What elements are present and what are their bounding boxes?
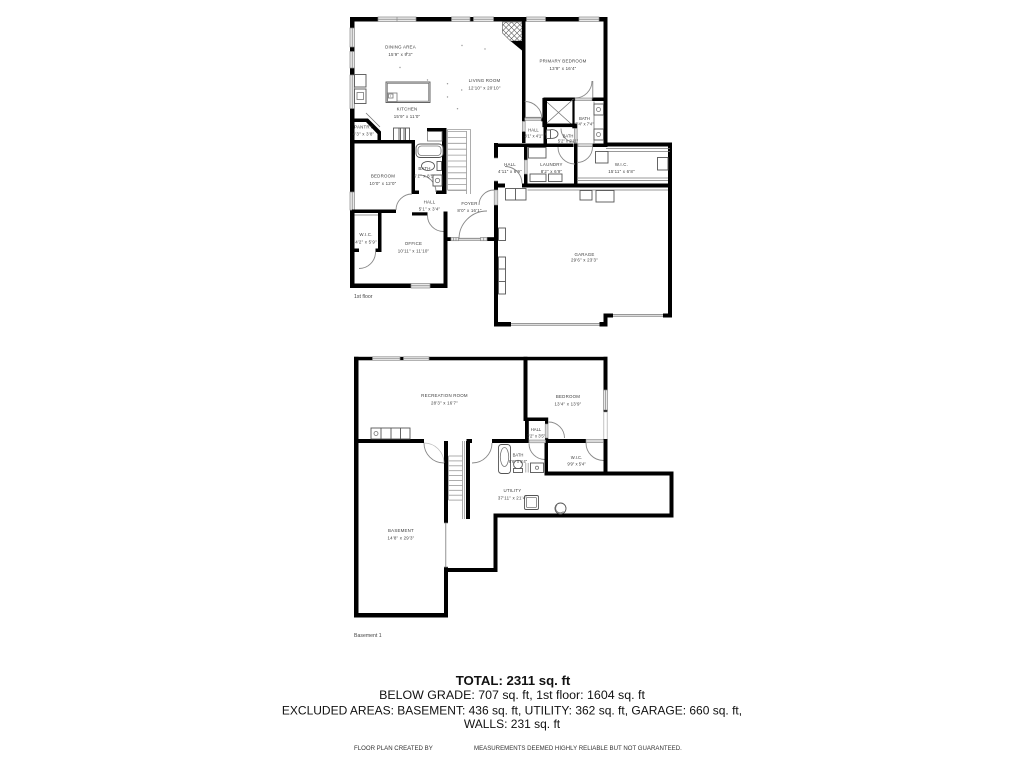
svg-text:HALL: HALL [424, 200, 436, 205]
svg-text:BELOW GRADE: 707 sq. ft, 1st f: BELOW GRADE: 707 sq. ft, 1st floor: 1604… [379, 688, 645, 702]
svg-text:WALLS: 231 sq. ft: WALLS: 231 sq. ft [464, 717, 561, 731]
svg-text:FOYER: FOYER [461, 201, 477, 206]
svg-text:9'9" x 5'4": 9'9" x 5'4" [567, 462, 586, 467]
svg-text:15'11" x 6'8": 15'11" x 6'8" [608, 169, 635, 174]
svg-text:PRIMARY BEDROOM: PRIMARY BEDROOM [539, 59, 586, 64]
svg-text:HALL: HALL [531, 427, 542, 432]
svg-text:15'9" x 11'0": 15'9" x 11'0" [394, 114, 421, 119]
svg-text:UTILITY: UTILITY [504, 488, 522, 493]
svg-text:BEDROOM: BEDROOM [371, 174, 395, 179]
svg-text:6'1" x 8'5": 6'1" x 8'5" [414, 174, 436, 179]
svg-text:MEASUREMENTS DEEMED HIGHLY REL: MEASUREMENTS DEEMED HIGHLY RELIABLE BUT … [474, 745, 682, 752]
svg-text:28'3" x 16'7": 28'3" x 16'7" [431, 401, 458, 406]
svg-text:W.I.C.: W.I.C. [571, 455, 582, 460]
svg-text:10'0" x 12'0": 10'0" x 12'0" [370, 181, 397, 186]
svg-text:8'6" x 5'4": 8'6" x 5'4" [509, 459, 528, 464]
svg-text:3'2" x 3'5": 3'2" x 3'5" [527, 434, 546, 439]
svg-text:RECREATION ROOM: RECREATION ROOM [421, 393, 468, 398]
svg-text:Basement 1: Basement 1 [354, 633, 382, 639]
svg-text:8'0" x 16'1": 8'0" x 16'1" [457, 208, 481, 213]
svg-text:7'4" x 7'4": 7'4" x 7'4" [575, 122, 594, 127]
svg-text:14'8" x 29'3": 14'8" x 29'3" [388, 536, 415, 541]
svg-text:BATH: BATH [579, 116, 590, 121]
svg-text:5'1" x 3'4": 5'1" x 3'4" [419, 207, 441, 212]
svg-text:8'2" x 6'9": 8'2" x 6'9" [541, 169, 563, 174]
svg-text:12'10" x 20'10": 12'10" x 20'10" [468, 86, 500, 91]
svg-text:PANTRY: PANTRY [354, 125, 373, 130]
svg-text:BATH: BATH [513, 453, 524, 458]
svg-text:HALL: HALL [504, 162, 516, 167]
svg-text:BATH: BATH [418, 166, 430, 171]
svg-text:29'6" x 23'3": 29'6" x 23'3" [571, 258, 598, 263]
svg-text:15'9" x 9'3": 15'9" x 9'3" [388, 52, 412, 57]
svg-text:BEDROOM: BEDROOM [556, 394, 580, 399]
svg-text:GARAGE: GARAGE [574, 252, 594, 257]
svg-text:13'4" x 13'9": 13'4" x 13'9" [555, 402, 582, 407]
svg-text:BASEMENT: BASEMENT [388, 528, 414, 533]
svg-text:TOTAL: 2311 sq. ft: TOTAL: 2311 sq. ft [456, 673, 571, 688]
svg-text:W.I.C.: W.I.C. [359, 232, 372, 237]
svg-text:LIVING ROOM: LIVING ROOM [469, 78, 501, 83]
svg-text:LAUNDRY: LAUNDRY [540, 162, 562, 167]
svg-text:4'11" x 6'9": 4'11" x 6'9" [498, 169, 522, 174]
svg-text:5'2" x 2'11": 5'2" x 2'11" [558, 139, 579, 144]
svg-text:KITCHEN: KITCHEN [397, 107, 418, 112]
svg-text:OFFICE: OFFICE [405, 241, 422, 246]
svg-text:1st floor: 1st floor [354, 294, 373, 300]
svg-text:13'9" x 16'4": 13'9" x 16'4" [550, 66, 577, 71]
svg-text:W.I.C.: W.I.C. [615, 162, 628, 167]
svg-text:3'1" x 4'1": 3'1" x 4'1" [524, 134, 543, 139]
svg-text:10'11" x 11'10": 10'11" x 11'10" [398, 249, 430, 254]
svg-text:4'2" x 5'9": 4'2" x 5'9" [355, 240, 377, 245]
svg-text:37'11" x 21'4": 37'11" x 21'4" [498, 496, 527, 501]
svg-text:EXCLUDED AREAS: BASEMENT: 436: EXCLUDED AREAS: BASEMENT: 436 sq. ft, UT… [282, 704, 742, 718]
svg-text:HALL: HALL [528, 128, 539, 133]
svg-text:DINING AREA: DINING AREA [385, 45, 416, 50]
svg-text:FLOOR PLAN CREATED BY: FLOOR PLAN CREATED BY [354, 745, 433, 752]
svg-text:4'3" x 3'8": 4'3" x 3'8" [353, 132, 375, 137]
